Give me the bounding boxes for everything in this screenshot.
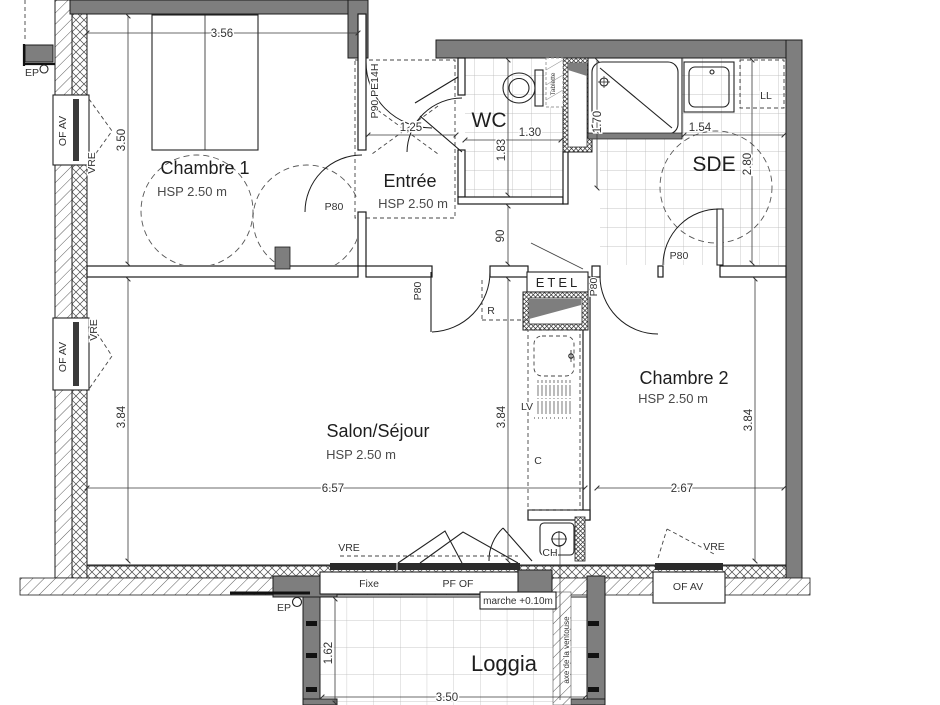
wall-wc-bottom [458, 197, 563, 204]
label-ep-bottom: EP [277, 602, 291, 614]
dim-chambre2-depth: 3.84 [743, 408, 755, 431]
room-label-wc: WC [472, 109, 507, 132]
dim-wc-width: 1.30 [519, 127, 541, 139]
floor-plan-drawing: Chambre 1 HSP 2.50 m Entrée HSP 2.50 m W… [0, 0, 940, 705]
dim-chambre1-depth: 3.50 [116, 129, 128, 151]
door-leaf [420, 116, 462, 152]
room-label-chambre2: Chambre 2 [639, 368, 728, 388]
wall-wc-left-upper [458, 58, 465, 95]
label-dishwasher: LV [521, 401, 533, 413]
wall-entree-salon [366, 266, 432, 277]
salon-door [431, 272, 490, 332]
kitchen-sink [534, 336, 574, 376]
rainwater-pipe-top [24, 0, 55, 73]
dim-kitchen-depth: 3.84 [496, 405, 508, 428]
dim-wc-depth: 1.83 [496, 139, 508, 161]
wall-ch1-salon [87, 266, 358, 277]
window-label-pf-of: PF OF [443, 578, 474, 590]
dim-entree-width: 1,25 [400, 122, 422, 134]
duct-inner [568, 63, 587, 147]
window-label-fixe: Fixe [359, 578, 379, 590]
left-wall-insulation [72, 0, 87, 578]
chambre1-door-clearance-circle [253, 165, 361, 273]
left-wall-outer-hatch [55, 0, 72, 578]
window-pf-of [320, 531, 520, 594]
wall-sde-right [720, 266, 786, 277]
window-label-vre-1: VRE [86, 152, 98, 174]
kitchen-outline [528, 330, 580, 510]
top-wall-chambre1 [70, 0, 362, 14]
label-boiler: CH [542, 547, 557, 559]
label-tablette: Tablette [550, 72, 557, 95]
wall-kitchen-stub [592, 266, 600, 277]
label-ep-top: EP [25, 67, 39, 79]
room-hsp-entree: HSP 2.50 m [378, 196, 448, 211]
loggia-bottom-right-stub [571, 699, 605, 705]
door-swing-arc [432, 272, 490, 332]
wall-between-doors [658, 266, 663, 277]
room-hsp-chambre2: HSP 2.50 m [638, 391, 708, 406]
window-bar [655, 563, 723, 570]
dishwasher-rack-1 [536, 380, 572, 396]
wall-ch1-entree-lower [358, 212, 366, 266]
label-fridge: R [487, 305, 495, 317]
dim-loggia-width: 3.50 [436, 692, 458, 704]
dim-shower-length: 1.70 [592, 111, 604, 133]
room-hsp-chambre1: HSP 2.50 m [157, 184, 227, 199]
window-label-of-av-1: OF AV [57, 116, 69, 146]
label-etel: ETEL [536, 275, 581, 290]
window-label-vre-2: VRE [88, 319, 100, 341]
window-label-vre-pfof: VRE [338, 542, 360, 554]
label-flue-axis: axe de la ventouse [562, 616, 571, 684]
right-wall [786, 40, 802, 580]
loggia-tiled-floor [320, 597, 587, 705]
chambre2-door [600, 276, 658, 334]
chambre1-column [275, 247, 290, 269]
dim-sde-width: 1.54 [689, 122, 712, 134]
loggia-grey-block [518, 570, 552, 592]
window-label-of-av-3: OF AV [673, 581, 703, 593]
ep-pipe-circle [40, 65, 48, 73]
wall-hall-stub [490, 266, 528, 277]
dim-loggia-depth: 1.62 [323, 642, 335, 664]
label-cooker: C [534, 455, 542, 467]
door-leaf [717, 209, 723, 265]
window-glazing [73, 322, 79, 386]
door-swing-arc [600, 276, 658, 334]
bed [152, 15, 258, 150]
dim-chambre2-width: 2.67 [671, 483, 693, 495]
label-step: marche +0.10m [483, 596, 553, 607]
ep-pipe-body [25, 45, 53, 62]
dim-salon-depth: 3.84 [116, 405, 128, 428]
wall-ch1-entree-upper [358, 14, 366, 150]
room-label-chambre1: Chambre 1 [160, 158, 249, 178]
flue-outlet-cross [551, 531, 567, 547]
window-label-box [320, 572, 518, 594]
window-label-vre-ofav: VRE [703, 541, 725, 553]
ep-circle [293, 598, 302, 607]
loggia-right-wall [587, 576, 605, 705]
dim-salon-width: 6.57 [322, 483, 344, 495]
dishwasher-rack-2 [536, 398, 572, 414]
top-wall-wc-sde [436, 40, 786, 58]
dim-sde-depth: 2.80 [742, 153, 754, 175]
dim-hall-width: 90 [495, 230, 507, 243]
door-label-chambre1: P80 [325, 201, 344, 213]
room-label-loggia: Loggia [471, 651, 538, 676]
door-label-sde: P80 [670, 250, 689, 262]
room-label-entree: Entrée [383, 171, 436, 191]
door-label-salon: P80 [412, 282, 424, 301]
window-label-of-av-2: OF AV [57, 342, 69, 372]
wall-below-duct [563, 152, 568, 204]
room-label-sde: SDE [692, 153, 735, 176]
room-hsp-salon: HSP 2.50 m [326, 447, 396, 462]
door-label-entrance: P90 PE14H [369, 64, 381, 119]
casement-triangle-2 [420, 532, 518, 563]
label-ll: LL [760, 90, 772, 102]
window-bar [330, 563, 520, 570]
room-label-salon: Salon/Séjour [326, 421, 429, 441]
boiler-duct [575, 517, 585, 561]
wall-wc-left-lower [458, 150, 465, 197]
loggia-bottom-left-stub [303, 699, 337, 705]
door-label-chambre2: P80 [588, 278, 600, 297]
casement-triangle-1 [398, 531, 462, 563]
dim-chambre1-width: 3.56 [211, 28, 233, 40]
floor-plan-page: Chambre 1 HSP 2.50 m Entrée HSP 2.50 m W… [0, 0, 940, 705]
window-glazing [73, 99, 79, 161]
